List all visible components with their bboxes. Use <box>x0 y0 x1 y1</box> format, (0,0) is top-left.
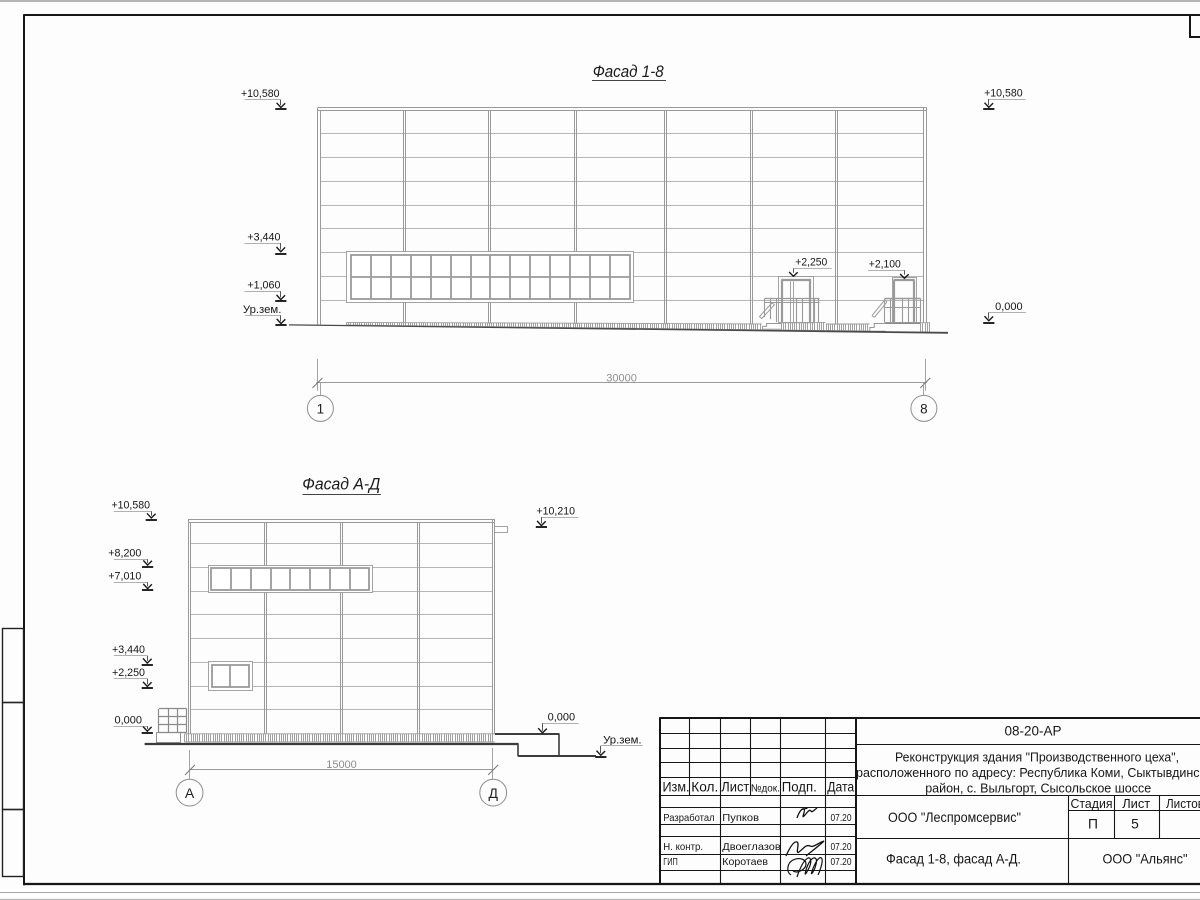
svg-text:Изм.: Изм. <box>663 780 690 796</box>
svg-text:Разработал: Разработал <box>663 812 714 824</box>
svg-text:Реконструкция здания "Производ: Реконструкция здания "Производственного … <box>895 750 1179 765</box>
svg-text:Д: Д <box>488 785 498 801</box>
svg-text:+2,250: +2,250 <box>795 256 827 268</box>
svg-text:+3,440: +3,440 <box>112 644 145 656</box>
svg-text:+2,250: +2,250 <box>112 667 145 679</box>
svg-text:Подп.: Подп. <box>782 780 817 796</box>
svg-text:ООО "Леспромсервис": ООО "Леспромсервис" <box>888 809 1021 825</box>
svg-text:07.20: 07.20 <box>831 813 852 824</box>
svg-text:Лист: Лист <box>1122 796 1150 811</box>
svg-text:+2,100: +2,100 <box>869 259 901 271</box>
svg-text:15000: 15000 <box>326 759 357 771</box>
svg-text:район, с. Выльгорт, Сысольское: район, с. Выльгорт, Сысольское шоссе <box>925 780 1151 795</box>
svg-text:+10,210: +10,210 <box>537 506 576 518</box>
svg-text:0,000: 0,000 <box>115 715 143 727</box>
svg-text:+10,580: +10,580 <box>984 88 1023 100</box>
svg-text:+3,440: +3,440 <box>247 232 280 244</box>
svg-text:+1,060: +1,060 <box>247 280 280 292</box>
svg-text:+10,580: +10,580 <box>241 88 280 100</box>
svg-text:Фасад 1-8: Фасад 1-8 <box>593 62 664 81</box>
svg-text:0,000: 0,000 <box>548 712 576 724</box>
svg-text:08-20-АР: 08-20-АР <box>1004 724 1061 739</box>
svg-text:+10,580: +10,580 <box>112 500 151 512</box>
svg-text:расположенного по адресу: Респ: расположенного по адресу: Республика Ком… <box>856 765 1200 780</box>
svg-text:Лист: Лист <box>721 780 749 796</box>
svg-text:Кол.: Кол. <box>691 780 718 796</box>
svg-text:Дата: Дата <box>827 780 854 796</box>
svg-text:А: А <box>185 785 195 801</box>
svg-text:0,000: 0,000 <box>995 301 1023 313</box>
svg-text:Фасад А-Д: Фасад А-Д <box>302 474 380 493</box>
svg-text:Н. контр.: Н. контр. <box>663 842 703 853</box>
svg-text:30000: 30000 <box>606 372 637 384</box>
svg-text:№док.: №док. <box>751 783 780 795</box>
svg-text:8: 8 <box>920 401 928 416</box>
svg-text:07.20: 07.20 <box>831 857 852 868</box>
svg-text:5: 5 <box>1131 817 1139 832</box>
svg-text:Ур.зем.: Ур.зем. <box>243 304 282 316</box>
svg-text:Листов: Листов <box>1166 796 1200 811</box>
svg-text:ГИП: ГИП <box>663 857 678 868</box>
svg-text:+8,200: +8,200 <box>108 548 141 560</box>
svg-text:07.20: 07.20 <box>831 842 852 853</box>
svg-text:Коротаев: Коротаев <box>722 857 768 868</box>
svg-text:Двоеглазов: Двоеглазов <box>722 842 781 853</box>
svg-text:Ур.зем.: Ур.зем. <box>603 734 642 746</box>
svg-text:Фасад 1-8, фасад А-Д.: Фасад 1-8, фасад А-Д. <box>886 851 1021 867</box>
svg-text:П: П <box>1088 817 1098 832</box>
svg-text:Пупков: Пупков <box>722 813 759 824</box>
svg-text:+7,010: +7,010 <box>108 571 141 583</box>
svg-text:ООО "Альянс": ООО "Альянс" <box>1103 851 1188 867</box>
svg-text:1: 1 <box>317 401 325 416</box>
svg-text:Стадия: Стадия <box>1071 796 1113 811</box>
